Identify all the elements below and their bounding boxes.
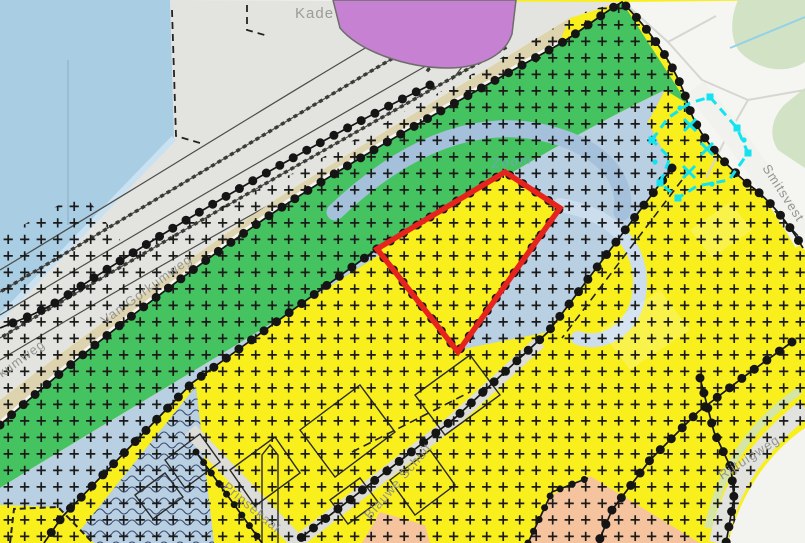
map-canvas[interactable]: Kade Van Gorkumweg Van Gorkumweg Smitsve… (0, 0, 805, 543)
street-label-kade: Kade (295, 5, 334, 22)
zoning-map-viewport[interactable]: Kade Van Gorkumweg Van Gorkumweg Smitsve… (0, 0, 805, 543)
